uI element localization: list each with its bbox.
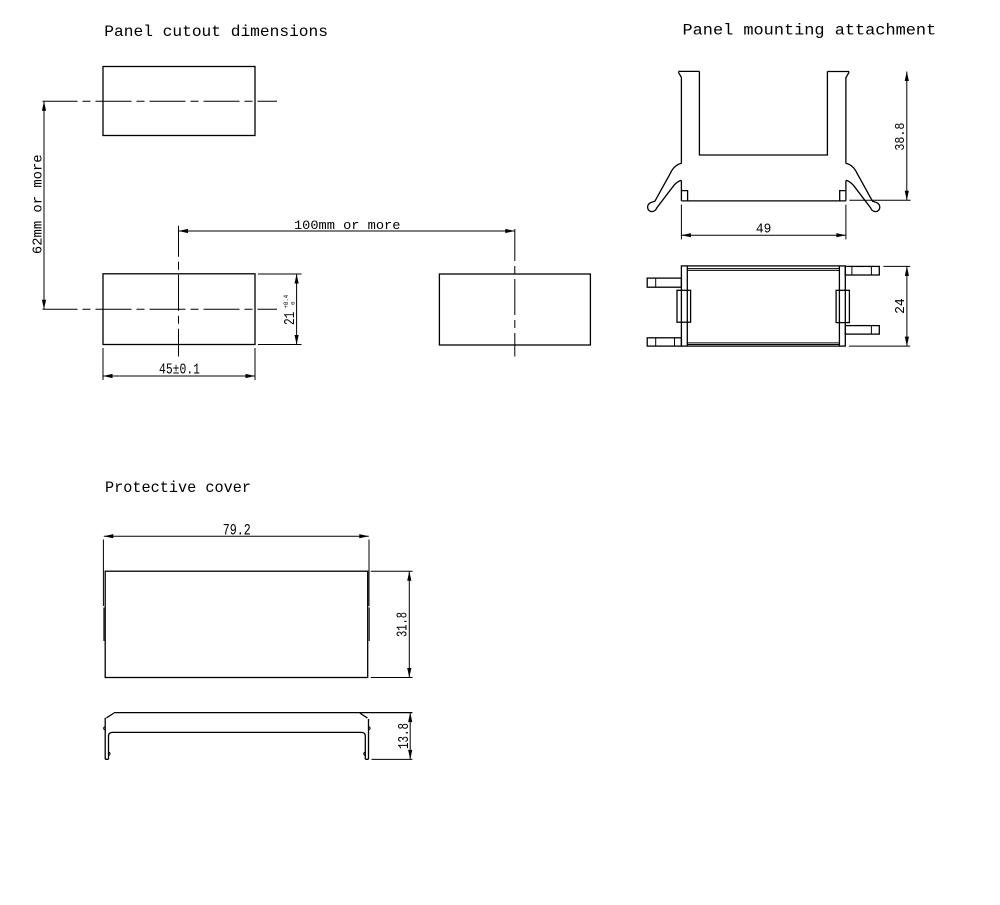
svg-text:38.8: 38.8 [894, 123, 909, 151]
svg-text:31.8: 31.8 [396, 612, 412, 637]
svg-text:13.8: 13.8 [396, 723, 413, 749]
svg-text:79.2: 79.2 [223, 522, 251, 540]
svg-text:100mm or more: 100mm or more [294, 218, 400, 233]
svg-text:Panel cutout dimensions: Panel cutout dimensions [104, 23, 328, 41]
svg-text:0: 0 [289, 302, 296, 305]
svg-text:62mm or more: 62mm or more [32, 154, 47, 254]
svg-text:49: 49 [756, 222, 771, 237]
svg-text:24: 24 [894, 298, 909, 314]
svg-text:Protective cover: Protective cover [105, 479, 251, 497]
svg-text:Panel mounting attachment: Panel mounting attachment [683, 22, 937, 40]
svg-text:45±0.1: 45±0.1 [159, 363, 200, 379]
svg-text:21: 21 [281, 312, 299, 325]
